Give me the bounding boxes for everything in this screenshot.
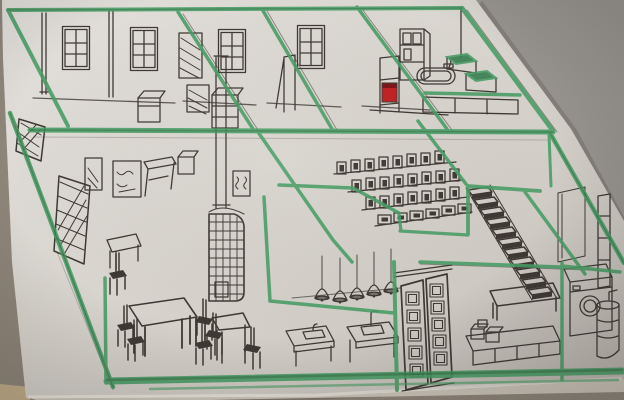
floorplan-drawing: Photographed hand-drawn isometric cutawa… [0, 0, 624, 400]
photo-grain [0, 0, 624, 400]
photo-of-floorplan-sketch: Photographed hand-drawn isometric cutawa… [0, 0, 624, 400]
